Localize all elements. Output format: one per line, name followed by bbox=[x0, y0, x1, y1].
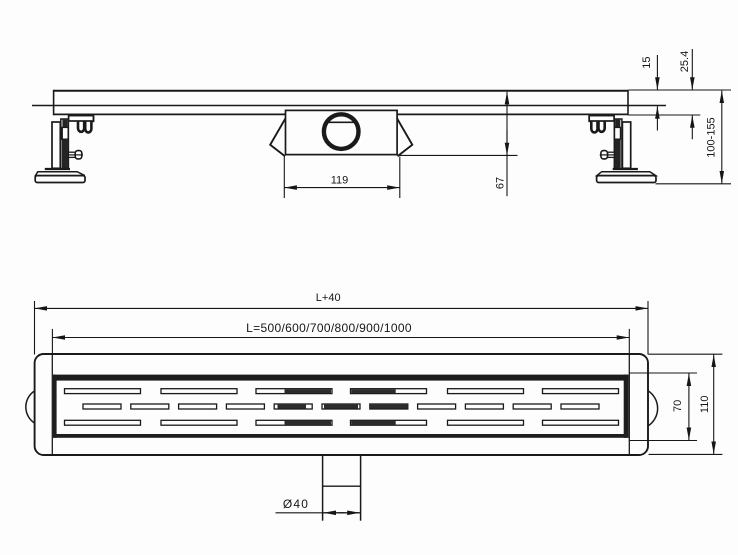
svg-text:119: 119 bbox=[331, 175, 349, 187]
svg-text:Ø40: Ø40 bbox=[283, 497, 309, 511]
svg-text:L=500/600/700/800/900/1000: L=500/600/700/800/900/1000 bbox=[246, 321, 412, 335]
svg-text:70: 70 bbox=[672, 400, 684, 412]
svg-text:L+40: L+40 bbox=[316, 292, 341, 304]
svg-text:25.4: 25.4 bbox=[679, 51, 691, 72]
svg-text:67: 67 bbox=[495, 177, 507, 189]
svg-text:100-155: 100-155 bbox=[706, 117, 718, 157]
svg-text:110: 110 bbox=[699, 396, 711, 414]
svg-text:15: 15 bbox=[641, 56, 653, 68]
